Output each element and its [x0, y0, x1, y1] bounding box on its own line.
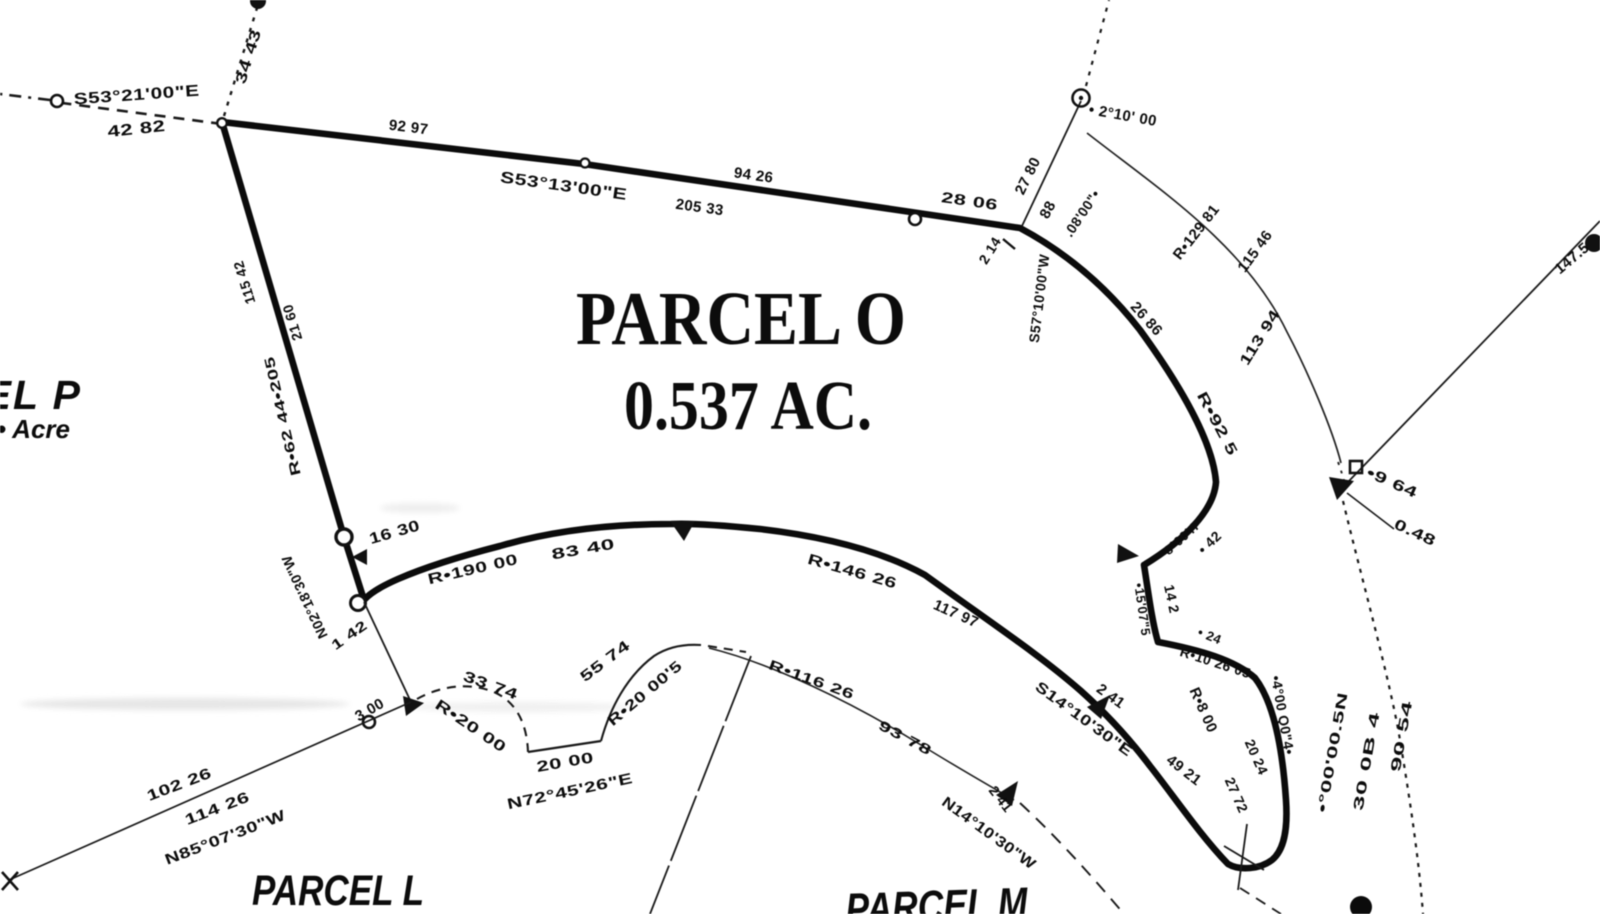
svg-text:0.537 AC.: 0.537 AC. [624, 368, 872, 445]
svg-text:PARCEL L: PARCEL L [252, 867, 424, 914]
svg-text:PARCEL M: PARCEL M [845, 879, 1030, 914]
svg-text:PARCEL O: PARCEL O [576, 277, 906, 361]
svg-text:PARCEL P: PARCEL P [0, 372, 82, 418]
svg-text:• Acre: • Acre [0, 414, 70, 444]
